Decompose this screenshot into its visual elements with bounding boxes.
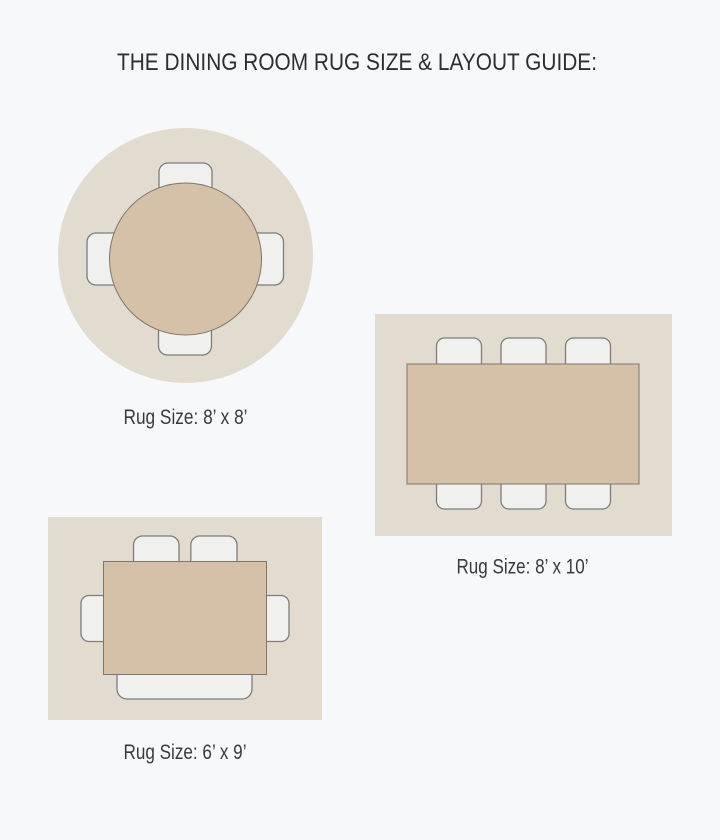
svg-text:Rug Size: 8’ x 8’: Rug Size: 8’ x 8’ [124, 406, 248, 429]
svg-text:Rug Size: 8’ x 10’: Rug Size: 8’ x 10’ [457, 556, 589, 579]
svg-text:THE DINING ROOM RUG SIZE & LAY: THE DINING ROOM RUG SIZE & LAYOUT GUIDE: [117, 49, 597, 76]
svg-text:Rug Size: 6’ x 9’: Rug Size: 6’ x 9’ [124, 741, 247, 764]
